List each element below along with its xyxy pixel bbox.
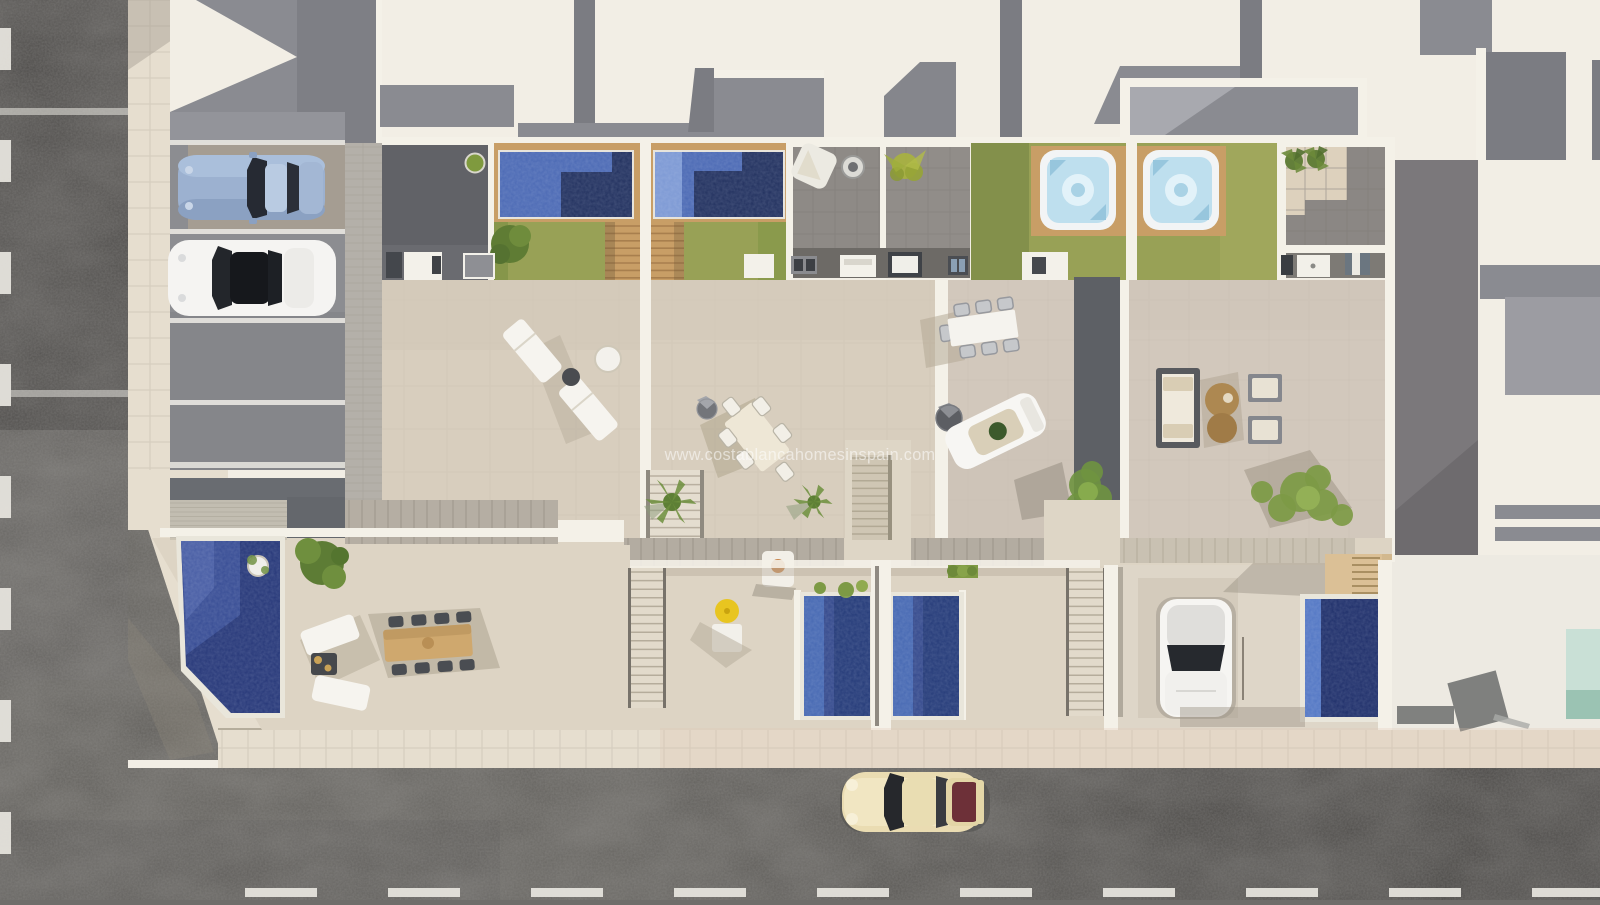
svg-text:www.costablancahomesinspain.co: www.costablancahomesinspain.com — [664, 446, 936, 464]
